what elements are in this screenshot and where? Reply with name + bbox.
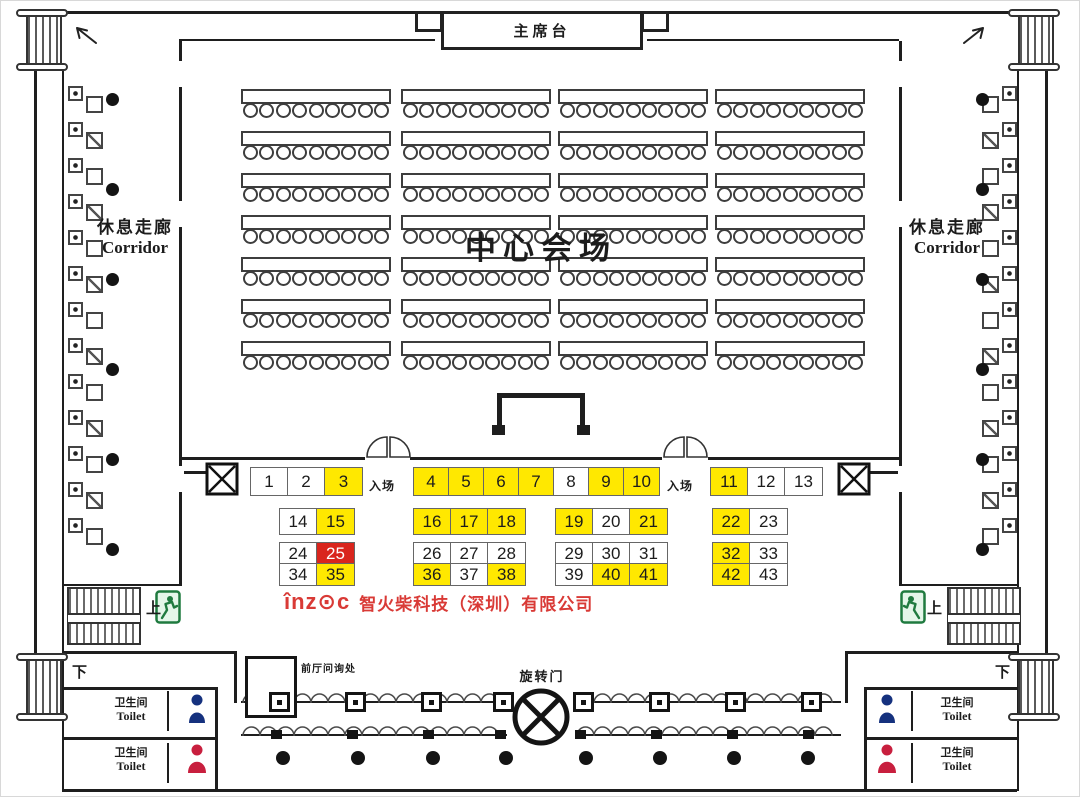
chair-icon xyxy=(292,145,307,160)
chair-icon xyxy=(452,355,467,370)
column-small xyxy=(347,730,358,739)
chair-icon xyxy=(815,187,830,202)
chair-icon xyxy=(534,145,549,160)
column-dot xyxy=(976,183,989,196)
chair-icon xyxy=(848,355,863,370)
seat-row-unit xyxy=(715,299,865,328)
chair-icon xyxy=(436,187,451,202)
seat-row-unit xyxy=(715,89,865,118)
booth-group: 4243 xyxy=(712,563,788,586)
chair-icon xyxy=(518,145,533,160)
booth-42[interactable]: 42 xyxy=(713,564,750,585)
planter-icon xyxy=(86,420,103,437)
table xyxy=(401,341,551,356)
column-dot xyxy=(106,453,119,466)
chair-icon xyxy=(259,103,274,118)
male-silhouette-icon xyxy=(877,693,897,723)
chair-icon xyxy=(309,313,324,328)
chairs xyxy=(558,313,708,328)
chairs xyxy=(558,271,708,286)
chair-icon xyxy=(609,145,624,160)
chairs xyxy=(241,103,391,118)
wall-segment xyxy=(864,687,1017,690)
wall-segment xyxy=(911,691,913,731)
x-box-column-icon xyxy=(837,462,871,496)
seat-row-unit xyxy=(401,299,551,328)
column-square xyxy=(725,692,746,712)
booth-group: 111213 xyxy=(710,467,823,496)
chair-icon xyxy=(276,145,291,160)
booth-23[interactable]: 23 xyxy=(750,509,787,534)
chair-icon xyxy=(658,355,673,370)
chair-icon xyxy=(452,187,467,202)
chair-icon xyxy=(717,271,732,286)
column-square xyxy=(345,692,366,712)
hall-title: 中心会场 xyxy=(391,223,691,268)
chair-icon xyxy=(309,355,324,370)
corridor-right-en: Corridor xyxy=(885,238,1009,258)
chair-icon xyxy=(341,187,356,202)
chair-icon xyxy=(750,271,765,286)
chair-icon xyxy=(832,313,847,328)
entrance-door-right-leaf-icon xyxy=(687,437,707,457)
chair-icon xyxy=(593,355,608,370)
toilet-label-right-bottom: 卫生间 Toilet xyxy=(917,747,997,773)
booth-1[interactable]: 1 xyxy=(251,468,288,495)
chair-icon xyxy=(452,271,467,286)
entrance-door-right-leaf-icon xyxy=(664,437,684,457)
chair-icon xyxy=(501,271,516,286)
chair-icon xyxy=(733,271,748,286)
chairs xyxy=(401,313,551,328)
chair-icon xyxy=(691,103,706,118)
table xyxy=(241,341,391,356)
chair-icon xyxy=(325,187,340,202)
booth-26[interactable]: 26 xyxy=(414,543,451,564)
toilet-cn: 卫生间 xyxy=(917,747,997,760)
booth-9[interactable]: 9 xyxy=(589,468,624,495)
chair-icon xyxy=(626,145,641,160)
chair-icon xyxy=(259,187,274,202)
bench-icon xyxy=(1002,122,1017,137)
hall-platform xyxy=(577,425,590,435)
chairs xyxy=(558,145,708,160)
up-label-right: 上 xyxy=(927,597,942,618)
chair-icon xyxy=(419,271,434,286)
column-small xyxy=(803,730,814,739)
chair-icon xyxy=(832,145,847,160)
booth-12[interactable]: 12 xyxy=(748,468,785,495)
chair-icon xyxy=(675,103,690,118)
planter-icon xyxy=(86,168,103,185)
wall-segment xyxy=(179,39,435,41)
table xyxy=(241,299,391,314)
column-small xyxy=(423,730,434,739)
chair-icon xyxy=(259,355,274,370)
chair-icon xyxy=(815,355,830,370)
down-label-right: 下 xyxy=(995,661,1010,682)
column-square xyxy=(649,692,670,712)
chair-icon xyxy=(501,355,516,370)
seat-row-unit xyxy=(401,341,551,370)
table xyxy=(558,131,708,146)
bench-icon xyxy=(1002,158,1017,173)
chair-icon xyxy=(243,313,258,328)
toilet-cn: 卫生间 xyxy=(91,747,171,760)
booth-31[interactable]: 31 xyxy=(630,543,667,564)
bench-icon xyxy=(1002,302,1017,317)
table xyxy=(715,215,865,230)
door-opening xyxy=(177,61,184,87)
door-opening xyxy=(177,466,184,492)
stairs-top-left xyxy=(21,9,67,71)
column-dot xyxy=(976,543,989,556)
entrance-door-left-leaf-icon xyxy=(367,437,387,457)
up-label-left: 上 xyxy=(146,597,161,618)
chair-icon xyxy=(675,313,690,328)
seat-row-unit xyxy=(558,173,708,202)
arrow-up-right-icon xyxy=(964,28,983,43)
wall-segment xyxy=(899,584,1019,586)
wall-segment xyxy=(637,11,1017,14)
column-dot xyxy=(106,273,119,286)
chair-icon xyxy=(717,187,732,202)
table xyxy=(241,131,391,146)
chairs xyxy=(715,271,865,286)
chair-icon xyxy=(750,355,765,370)
chair-icon xyxy=(642,313,657,328)
chair-icon xyxy=(750,229,765,244)
down-label-left: 下 xyxy=(72,661,87,682)
chair-icon xyxy=(403,271,418,286)
chair-icon xyxy=(358,313,373,328)
chairs xyxy=(401,103,551,118)
planter-icon xyxy=(86,348,103,365)
wall-segment xyxy=(899,41,902,586)
booth-5[interactable]: 5 xyxy=(449,468,484,495)
chair-icon xyxy=(243,103,258,118)
chair-icon xyxy=(609,103,624,118)
bench-icon xyxy=(68,518,83,533)
column-dot xyxy=(579,751,593,765)
table xyxy=(558,299,708,314)
table xyxy=(715,341,865,356)
chair-icon xyxy=(485,187,500,202)
column-small xyxy=(727,730,738,739)
seat-row-unit xyxy=(241,89,391,118)
booth-17[interactable]: 17 xyxy=(451,509,488,534)
wall-segment xyxy=(62,651,236,654)
bench-icon xyxy=(68,266,83,281)
column-dot xyxy=(106,363,119,376)
booth-32[interactable]: 32 xyxy=(713,543,750,564)
hall-platform xyxy=(497,393,585,398)
entrance-door-left-leaf-icon xyxy=(390,437,410,457)
chair-icon xyxy=(733,103,748,118)
stage-side-block xyxy=(415,11,443,32)
chair-icon xyxy=(626,355,641,370)
seat-row-unit xyxy=(715,131,865,160)
chair-icon xyxy=(691,145,706,160)
chair-icon xyxy=(534,271,549,286)
chairs xyxy=(241,271,391,286)
toilet-en: Toilet xyxy=(91,760,171,774)
chairs xyxy=(715,103,865,118)
table xyxy=(715,131,865,146)
chair-icon xyxy=(501,187,516,202)
chair-icon xyxy=(243,229,258,244)
wall-segment xyxy=(181,471,207,474)
bench-icon xyxy=(68,482,83,497)
chair-icon xyxy=(325,103,340,118)
seat-row-unit xyxy=(241,131,391,160)
chair-icon xyxy=(518,313,533,328)
chair-icon xyxy=(259,313,274,328)
chair-icon xyxy=(642,103,657,118)
bench-icon xyxy=(68,446,83,461)
booth-40[interactable]: 40 xyxy=(593,564,630,585)
chair-icon xyxy=(341,103,356,118)
chair-icon xyxy=(750,145,765,160)
booth-group: 161718 xyxy=(413,508,526,535)
chair-icon xyxy=(560,313,575,328)
toilet-label-right-top: 卫生间 Toilet xyxy=(917,697,997,723)
seat-row-unit xyxy=(241,215,391,244)
booth-20[interactable]: 20 xyxy=(593,509,630,534)
booth-24[interactable]: 24 xyxy=(280,543,317,564)
stairs-top-right xyxy=(1013,9,1059,71)
chairs xyxy=(241,187,391,202)
seat-row-unit xyxy=(558,299,708,328)
table xyxy=(558,173,708,188)
column-dot xyxy=(976,273,989,286)
chairs xyxy=(241,145,391,160)
bench-icon xyxy=(1002,266,1017,281)
booth-30[interactable]: 30 xyxy=(593,543,630,564)
male-silhouette-icon xyxy=(187,693,207,723)
entrance-label-right: 入场 xyxy=(667,477,693,494)
chair-icon xyxy=(243,271,258,286)
corridor-left-label: 休息走廊 Corridor xyxy=(73,213,197,258)
booth-11[interactable]: 11 xyxy=(711,468,748,495)
booth-33[interactable]: 33 xyxy=(750,543,787,564)
chair-icon xyxy=(626,313,641,328)
chair-icon xyxy=(766,229,781,244)
chair-icon xyxy=(325,145,340,160)
chair-icon xyxy=(733,229,748,244)
booth-25[interactable]: 25 xyxy=(317,543,354,564)
chair-icon xyxy=(642,271,657,286)
stairs-left xyxy=(67,587,141,645)
booth-7[interactable]: 7 xyxy=(519,468,554,495)
column-dot xyxy=(976,363,989,376)
seat-row-unit xyxy=(715,257,865,286)
booth-10[interactable]: 10 xyxy=(624,468,659,495)
booth-41[interactable]: 41 xyxy=(630,564,667,585)
chair-icon xyxy=(309,271,324,286)
revolving-door-label: 旋转门 xyxy=(506,666,578,685)
booth-36[interactable]: 36 xyxy=(414,564,451,585)
booth-19[interactable]: 19 xyxy=(556,509,593,534)
chair-icon xyxy=(469,187,484,202)
toilet-label-left-bottom: 卫生间 Toilet xyxy=(91,747,171,773)
wall-segment xyxy=(869,471,899,474)
booth-16[interactable]: 16 xyxy=(414,509,451,534)
booth-8[interactable]: 8 xyxy=(554,468,589,495)
chair-icon xyxy=(576,355,591,370)
wall-segment xyxy=(62,687,218,690)
wall-segment xyxy=(1017,65,1019,588)
booth-18[interactable]: 18 xyxy=(488,509,525,534)
booth-4[interactable]: 4 xyxy=(414,468,449,495)
planter-icon xyxy=(982,132,999,149)
toilet-en: Toilet xyxy=(917,710,997,724)
seat-row-unit xyxy=(241,341,391,370)
toilet-en: Toilet xyxy=(917,760,997,774)
booth-38[interactable]: 38 xyxy=(488,564,525,585)
booth-2[interactable]: 2 xyxy=(288,468,325,495)
chair-icon xyxy=(799,271,814,286)
booth-34[interactable]: 34 xyxy=(280,564,317,585)
wall-segment xyxy=(62,584,181,586)
planter-icon xyxy=(982,492,999,509)
chair-icon xyxy=(691,187,706,202)
chair-icon xyxy=(534,313,549,328)
table xyxy=(241,257,391,272)
chair-icon xyxy=(358,355,373,370)
chair-icon xyxy=(309,145,324,160)
planter-icon xyxy=(86,456,103,473)
booth-13[interactable]: 13 xyxy=(785,468,822,495)
chair-icon xyxy=(675,145,690,160)
chair-icon xyxy=(325,313,340,328)
chair-icon xyxy=(469,103,484,118)
chair-icon xyxy=(750,313,765,328)
wall-segment xyxy=(647,39,899,41)
column-dot xyxy=(276,751,290,765)
table xyxy=(401,299,551,314)
chair-icon xyxy=(593,271,608,286)
chairs xyxy=(401,355,551,370)
chair-icon xyxy=(436,103,451,118)
booth-21[interactable]: 21 xyxy=(630,509,667,534)
chair-icon xyxy=(403,145,418,160)
chair-icon xyxy=(626,187,641,202)
chair-icon xyxy=(658,271,673,286)
exit-sign-icon xyxy=(900,590,926,624)
chair-icon xyxy=(358,145,373,160)
planter-icon xyxy=(86,132,103,149)
chairs xyxy=(715,229,865,244)
wall-segment xyxy=(179,457,365,460)
seat-row-unit xyxy=(558,341,708,370)
booth-28[interactable]: 28 xyxy=(488,543,525,564)
chair-icon xyxy=(593,145,608,160)
chair-icon xyxy=(642,145,657,160)
chair-icon xyxy=(576,313,591,328)
chair-icon xyxy=(452,103,467,118)
chairs xyxy=(401,145,551,160)
chair-icon xyxy=(576,187,591,202)
booth-29[interactable]: 29 xyxy=(556,543,593,564)
chair-icon xyxy=(292,229,307,244)
chair-icon xyxy=(799,313,814,328)
chairs xyxy=(241,355,391,370)
chair-icon xyxy=(832,187,847,202)
bench-icon xyxy=(1002,518,1017,533)
booth-15[interactable]: 15 xyxy=(317,509,354,534)
chair-icon xyxy=(518,103,533,118)
column-square xyxy=(269,692,290,712)
chair-icon xyxy=(276,103,291,118)
chair-icon xyxy=(374,103,389,118)
seat-row-unit xyxy=(241,173,391,202)
chair-icon xyxy=(658,187,673,202)
booth-27[interactable]: 27 xyxy=(451,543,488,564)
bench-icon xyxy=(68,122,83,137)
booth-group: 192021 xyxy=(555,508,668,535)
chair-icon xyxy=(436,271,451,286)
booth-22[interactable]: 22 xyxy=(713,509,750,534)
chair-icon xyxy=(848,187,863,202)
chair-icon xyxy=(325,229,340,244)
chair-icon xyxy=(485,145,500,160)
chair-icon xyxy=(642,187,657,202)
bench-icon xyxy=(68,302,83,317)
column-dot xyxy=(727,751,741,765)
floor-plan: 主席台 中心会场 休息走廊 Corridor 休息走廊 Corridor 123… xyxy=(0,0,1080,797)
chair-icon xyxy=(276,271,291,286)
chair-icon xyxy=(292,271,307,286)
planter-icon xyxy=(982,312,999,329)
booth-35[interactable]: 35 xyxy=(317,564,354,585)
table xyxy=(401,173,551,188)
chair-icon xyxy=(403,355,418,370)
chair-icon xyxy=(292,355,307,370)
chair-icon xyxy=(642,355,657,370)
chair-icon xyxy=(469,271,484,286)
seat-row-unit xyxy=(401,131,551,160)
column-dot xyxy=(976,453,989,466)
chair-icon xyxy=(675,355,690,370)
chair-icon xyxy=(560,355,575,370)
booth-6[interactable]: 6 xyxy=(484,468,519,495)
booth-group: 1415 xyxy=(279,508,355,535)
bench-icon xyxy=(1002,482,1017,497)
chair-icon xyxy=(518,187,533,202)
company-line: înz⊙c 智火柴科技（深圳）有限公司 xyxy=(284,589,593,615)
booth-group: 363738 xyxy=(413,563,526,586)
bench-icon xyxy=(1002,446,1017,461)
planter-icon xyxy=(982,384,999,401)
chair-icon xyxy=(848,229,863,244)
x-box-column-icon xyxy=(205,462,239,496)
booth-37[interactable]: 37 xyxy=(451,564,488,585)
booth-14[interactable]: 14 xyxy=(280,509,317,534)
company-name: 智火柴科技（深圳）有限公司 xyxy=(359,590,593,615)
chair-icon xyxy=(766,145,781,160)
chair-icon xyxy=(815,313,830,328)
booth-3[interactable]: 3 xyxy=(325,468,362,495)
bench-icon xyxy=(68,338,83,353)
chair-icon xyxy=(276,313,291,328)
booth-39[interactable]: 39 xyxy=(556,564,593,585)
booth-group: 45678910 xyxy=(413,467,660,496)
chair-icon xyxy=(292,313,307,328)
chair-icon xyxy=(815,229,830,244)
chair-icon xyxy=(485,355,500,370)
booth-43[interactable]: 43 xyxy=(750,564,787,585)
